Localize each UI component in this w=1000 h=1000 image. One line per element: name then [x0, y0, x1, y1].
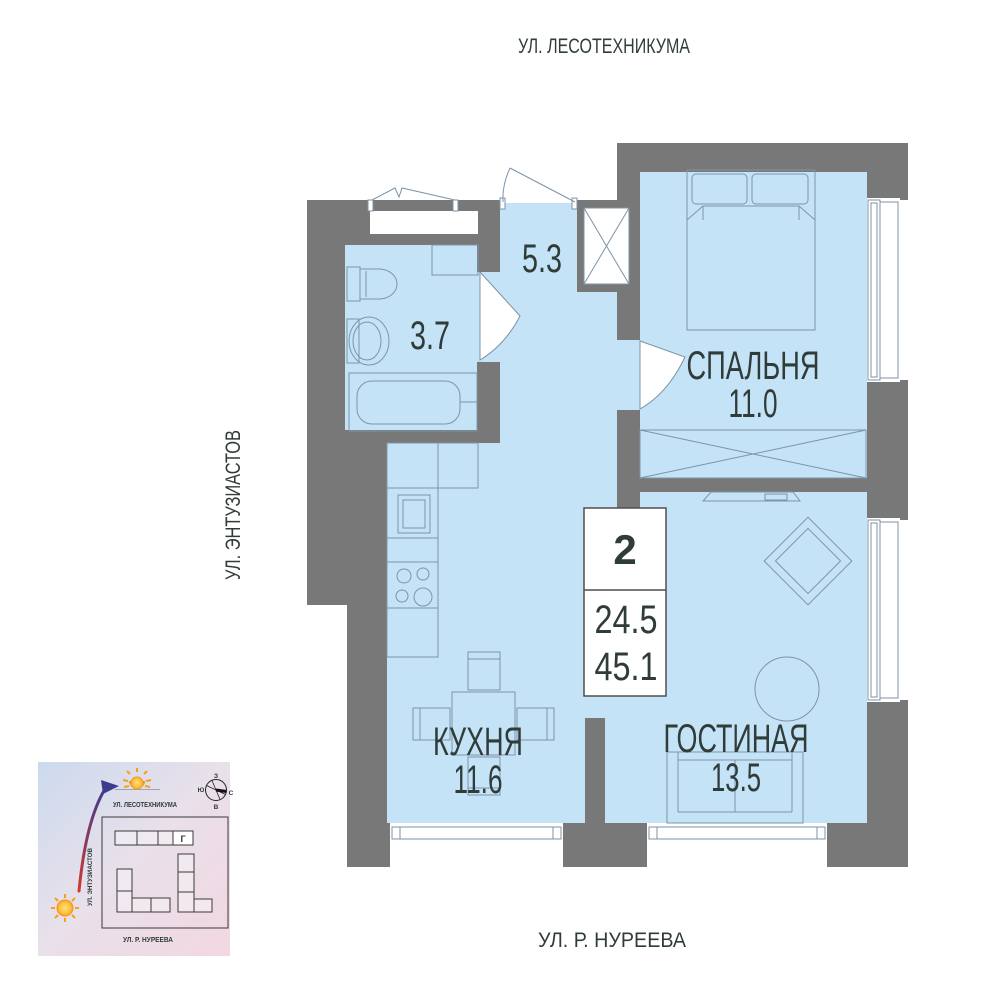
hall-area: 5.3: [522, 237, 562, 281]
total-area-value: 45.1: [595, 645, 658, 689]
bedroom-area: 11.0: [729, 382, 778, 426]
floorplan-canvas: УЛ. ЛЕСОТЕХНИКУМА УЛ. ЭНТУЗИАСТОВ УЛ. Р.…: [0, 0, 1000, 1000]
rooms-count: 2: [613, 526, 636, 573]
bathroom-niche: [370, 211, 478, 234]
minimap-street-left: УЛ. ЭНТУЗИАСТОВ: [87, 848, 94, 906]
building-letter: Г: [180, 834, 185, 844]
compass-south: Ю: [198, 787, 205, 794]
casement-window-icon: [372, 188, 455, 200]
minimap-street-top: УЛ. ЛЕСОТЕХНИКУМА: [113, 802, 177, 809]
street-label-left: УЛ. ЭНТУЗИАСТОВ: [222, 430, 245, 580]
compass-north: С: [229, 790, 234, 797]
entrance-door: [500, 168, 577, 209]
kitchen-area: 11.6: [454, 758, 503, 802]
street-label-bottom: УЛ. Р. НУРЕЕВА: [538, 929, 686, 952]
living-area-value: 24.5: [595, 598, 658, 642]
unit-info-box: 2 24.5 45.1: [584, 508, 666, 696]
living-name: ГОСТИНАЯ: [664, 717, 809, 761]
compass-east: В: [214, 804, 219, 811]
compass-west: З: [214, 773, 218, 780]
minimap-street-bottom: УЛ. Р. НУРЕЕВА: [123, 937, 173, 944]
vent-shaft: [584, 208, 629, 284]
street-label-top: УЛ. ЛЕСОТЕХНИКУМА: [518, 35, 690, 58]
minimap: З Ю С В УЛ. ЛЕСОТЕХНИКУМА УЛ. ЭНТУЗИАСТО…: [38, 762, 234, 956]
living-area: 13.5: [711, 756, 761, 800]
bath-area: 3.7: [410, 314, 450, 358]
floorplan-page: УЛ. ЛЕСОТЕХНИКУМА УЛ. ЭНТУЗИАСТОВ УЛ. Р.…: [0, 0, 1000, 1000]
